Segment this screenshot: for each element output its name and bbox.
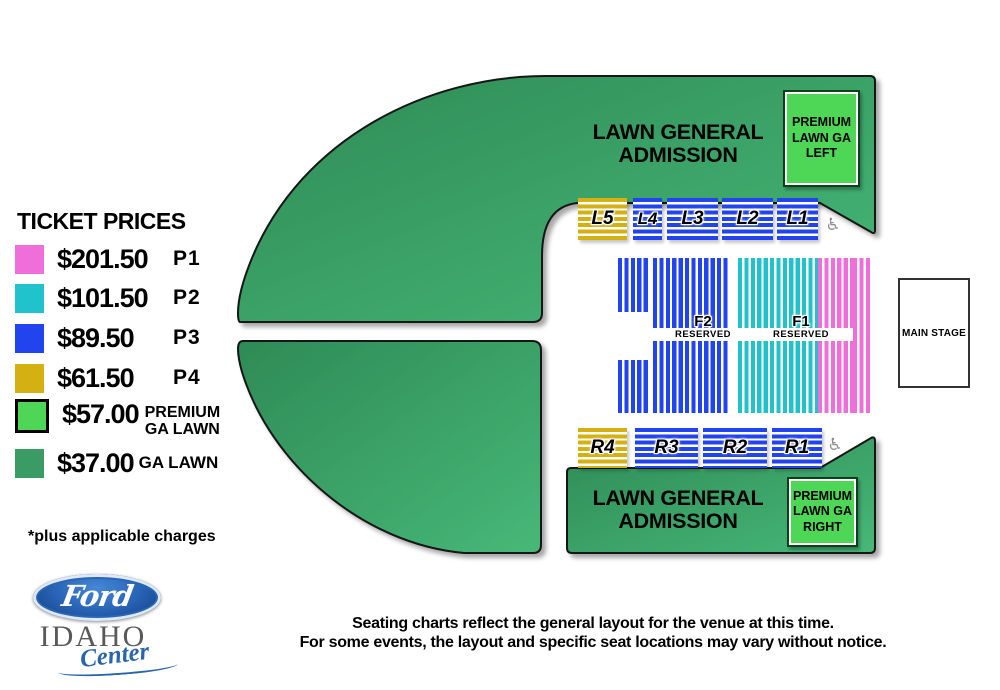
premium-lawn-ga-right-section[interactable]: PREMIUM LAWN GA RIGHT [787,477,858,547]
lawn-bottom-label: LAWN GENERAL ADMISSION [567,487,789,533]
footnote: *plus applicable charges [28,528,216,546]
galawn-swatch [15,449,44,478]
p4-tier: P4 [173,366,201,390]
galawn-price: $37.00 [57,448,134,479]
legend-row-premium: $57.00 PREMIUM GA LAWN [15,399,220,431]
legend-row-p3: $89.50 P3 [15,322,201,354]
p4-price: $61.50 [57,363,169,394]
p3-tier: P3 [173,326,201,350]
p4-swatch [15,364,44,393]
p2-price: $101.50 [57,283,169,314]
p3-swatch [15,324,44,353]
legend-row-p4: $61.50 P4 [15,362,201,394]
floor-section-F1-bottom[interactable] [738,341,818,413]
floor-section-P1-top[interactable] [818,258,853,328]
p1-tier: P1 [173,247,201,271]
section-L4[interactable]: L4 [633,198,662,240]
floor-section-F2-label: F2 RESERVED [660,314,746,340]
ford-logo-script: Ford [59,579,135,616]
legend-row-p1: $201.50 P1 [15,243,201,275]
section-L1[interactable]: L1 [777,198,818,240]
section-R1[interactable]: R1 [772,428,822,468]
seating-chart-page: LAWN GENERAL ADMISSION LAWN GENERAL ADMI… [0,0,1000,690]
floor-section-P1-bottom[interactable] [818,341,853,413]
p2-tier: P2 [173,286,201,310]
section-R4[interactable]: R4 [578,428,627,468]
floor-section-P1-right[interactable] [853,258,872,413]
legend-row-galawn: $37.00 GA LAWN [15,447,218,479]
floor-section-F2-wing-bottom[interactable] [618,360,648,413]
section-L5[interactable]: L5 [578,198,627,240]
lawn-top-label: LAWN GENERAL ADMISSION [567,121,789,167]
legend-title: TICKET PRICES [17,208,186,235]
floor-section-F2-main-bottom[interactable] [653,341,730,413]
wheelchair-icon-top: ♿ [823,215,843,235]
section-R2[interactable]: R2 [703,428,767,468]
floor-section-F2-wing-top[interactable] [618,258,648,312]
lawn-ga-bottom-left-shape[interactable] [238,341,541,553]
main-stage: MAIN STAGE [898,278,970,388]
premium-swatch [15,399,49,433]
wheelchair-icon-bottom: ♿ [825,435,845,455]
ford-logo-oval: Ford [33,574,161,621]
p1-price: $201.50 [57,244,169,275]
galawn-tier: GA LAWN [139,453,219,473]
disclaimer-text: Seating charts reflect the general layou… [293,614,893,652]
section-L2[interactable]: L2 [722,198,773,240]
p2-swatch [15,284,44,313]
premium-price: $57.00 [62,399,139,430]
p1-swatch [15,245,44,274]
legend-row-p2: $101.50 P2 [15,282,201,314]
section-R3[interactable]: R3 [635,428,698,468]
premium-lawn-ga-left-section[interactable]: PREMIUM LAWN GA LEFT [783,90,860,187]
section-L3[interactable]: L3 [667,198,718,240]
premium-tier: PREMIUM GA LAWN [145,405,221,439]
p3-price: $89.50 [57,323,169,354]
